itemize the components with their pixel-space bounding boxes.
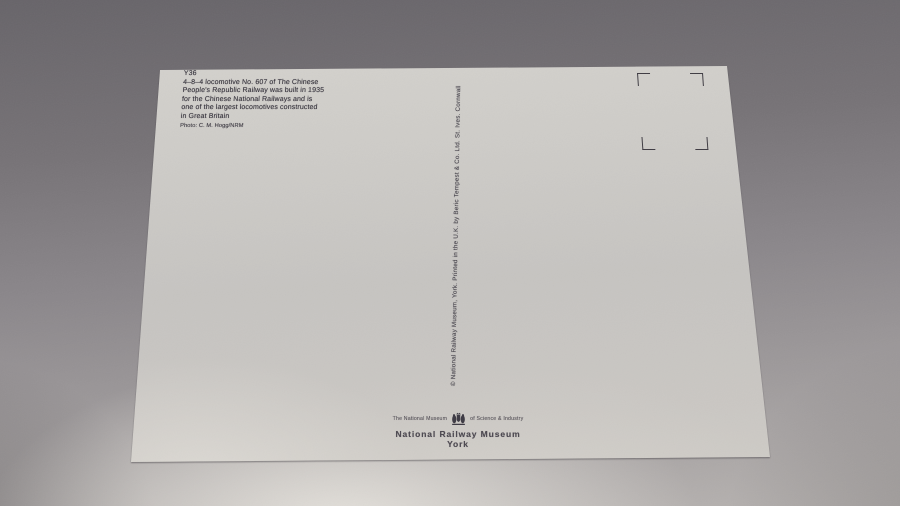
caption-line: in Great Britain (180, 113, 349, 122)
caption-line: 4–8–4 locomotive No. 607 of The Chinese (183, 79, 352, 88)
publisher-prefix: The National Museum (393, 416, 448, 422)
caption-line: People's Republic Railway was built in 1… (182, 87, 351, 96)
publisher-block: The National Museum o (356, 412, 560, 449)
caption-line: one of the largest locomotives construct… (181, 104, 350, 113)
caption-block: Y36 4–8–4 locomotive No. 607 of The Chin… (180, 70, 352, 130)
postcard-content: Y36 4–8–4 locomotive No. 607 of The Chin… (0, 0, 900, 506)
stamp-corner-mark-bottom-right-icon (694, 137, 708, 150)
catalogue-code: Y36 (183, 70, 352, 79)
stamp-corner-mark-top-left-icon (637, 73, 651, 86)
coat-of-arms-icon (450, 412, 467, 426)
stamp-corner-mark-top-right-icon (690, 73, 704, 86)
stamp-corner-mark-bottom-left-icon (641, 137, 655, 150)
publisher-top-line: The National Museum o (356, 412, 560, 426)
publisher-suffix: of Science & Industry (470, 416, 523, 422)
photo-credit: Photo: C. M. Hogg/NRM (180, 122, 349, 130)
printer-credit: © National Railway Museum, York. Printed… (450, 85, 462, 386)
publisher-name: National Railway Museum (356, 429, 560, 439)
publisher-place: York (356, 439, 560, 449)
stamp-box (637, 73, 708, 150)
photo-background: Y36 4–8–4 locomotive No. 607 of The Chin… (0, 0, 900, 506)
